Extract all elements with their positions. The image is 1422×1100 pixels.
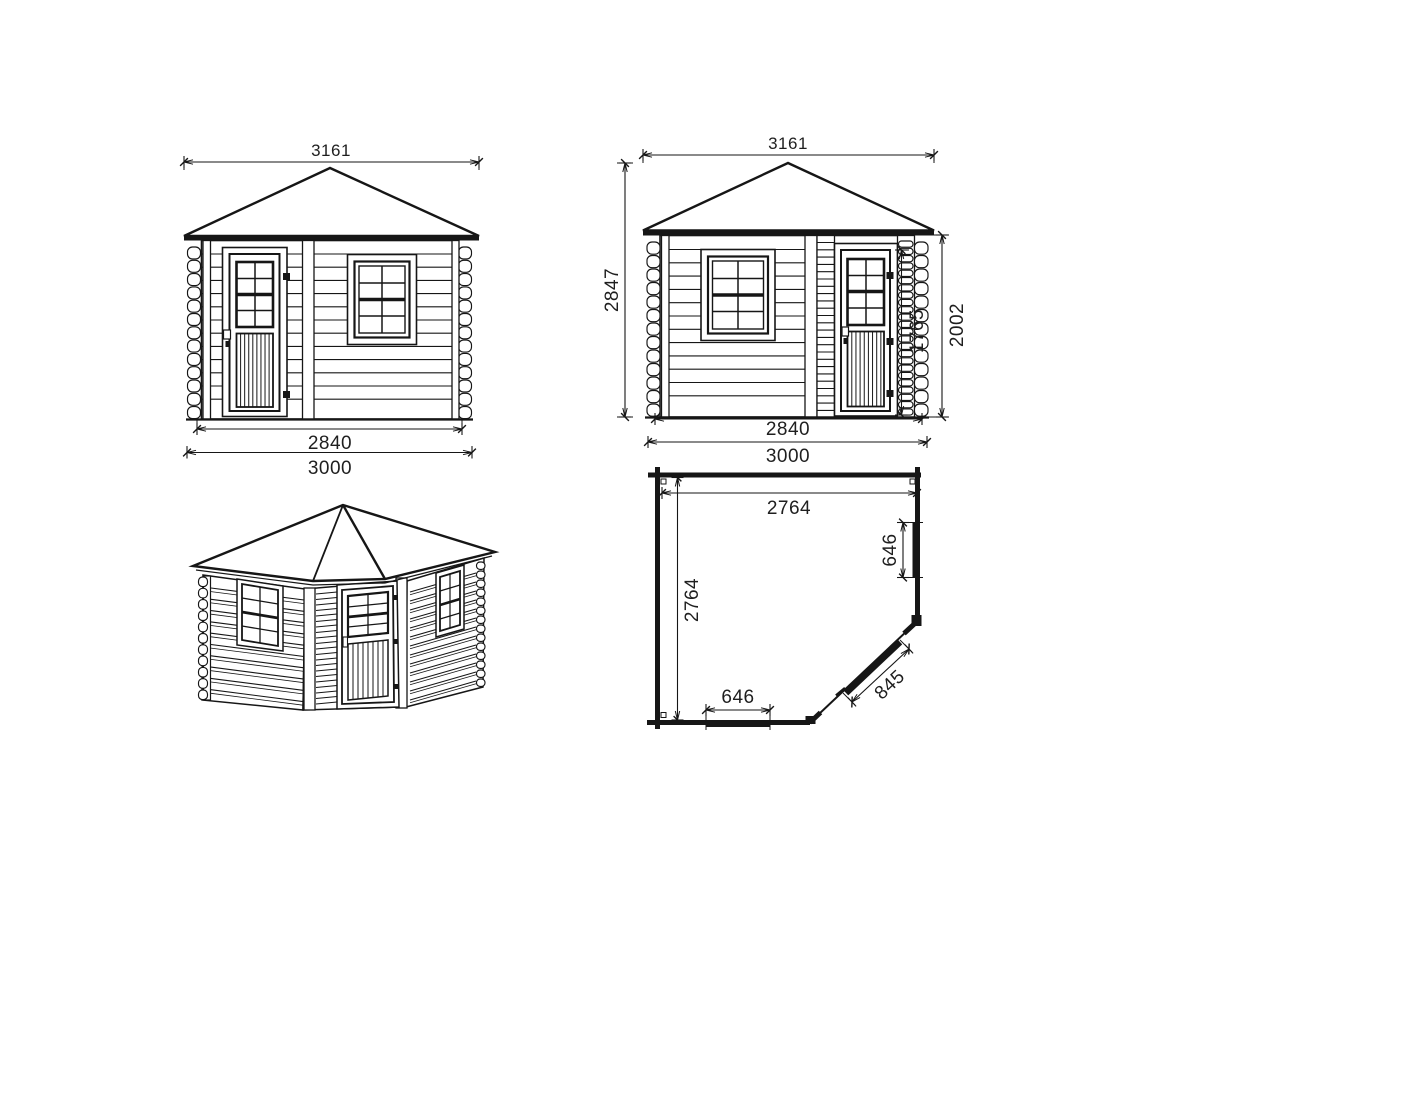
- perspective-view: [193, 505, 495, 710]
- side-door: [835, 244, 898, 417]
- front-window: [348, 255, 417, 345]
- side-door-slat-panel: [848, 332, 885, 407]
- side-window: [701, 250, 775, 341]
- side-door-hinge: [887, 272, 894, 279]
- plan-dim-door-width: 845: [871, 666, 910, 704]
- front-right-corner-trim: [452, 241, 459, 420]
- front-dim-roof-width: 3161: [311, 141, 351, 160]
- plan-corner-notch: [661, 713, 666, 718]
- p3-right-window: [436, 565, 464, 637]
- p3-door-left-post: [304, 588, 315, 710]
- front-dim-wall-width: 2840: [308, 433, 352, 454]
- side-door-hinge: [887, 390, 894, 397]
- p3-left-log-ends: [199, 577, 208, 700]
- p3-door-slats: [353, 641, 383, 700]
- front-eave-bar: [184, 235, 479, 241]
- side-eave-bar: [643, 230, 934, 236]
- plan-dim-side-window-width: 646: [880, 533, 901, 566]
- side-dim-door-height: 1765: [907, 309, 928, 353]
- front-door-lock: [226, 341, 230, 347]
- p3-door-handle: [343, 637, 348, 647]
- front-door-slat-panel: [237, 334, 274, 408]
- front-door-handle: [224, 330, 231, 339]
- plan-dim-interior-width: 2764: [767, 498, 811, 519]
- side-door-handle: [842, 327, 849, 336]
- front-dim-overall-width: 3000: [308, 458, 352, 479]
- drawing-sheet: 3161 2840 3000: [0, 0, 1422, 1100]
- front-left-log-ends: [188, 247, 201, 419]
- side-dim-wall-width: 2840: [766, 419, 810, 440]
- plan-dim-interior-depth: 2764: [682, 578, 703, 622]
- side-door-lock: [844, 338, 848, 344]
- plan-corner-block: [806, 716, 816, 724]
- front-elevation-view: 3161 2840 3000: [180, 141, 483, 479]
- side-left-log-ends: [647, 242, 660, 416]
- side-door-hinge: [887, 338, 894, 345]
- side-dim-wall-height: 2002: [947, 303, 968, 347]
- p3-left-window: [237, 579, 283, 651]
- p3-door-hinge: [394, 595, 399, 600]
- side-roof: [643, 163, 934, 231]
- side-angled-wall-strip: [817, 236, 835, 418]
- side-elevation-view: 3161 2847 1765 2002 2840 3000: [602, 134, 968, 467]
- side-dim-overall-width: 3000: [766, 446, 810, 467]
- front-right-log-ends: [459, 247, 472, 419]
- front-door: [223, 248, 291, 417]
- plan-wall-diagonal: [810, 621, 918, 723]
- side-corner-post: [805, 236, 817, 418]
- front-door-hinge: [283, 273, 290, 280]
- front-center-post: [303, 241, 315, 420]
- side-dim-roof-width: 3161: [768, 134, 808, 153]
- side-left-corner-trim: [662, 236, 670, 418]
- plan-corner-block: [912, 615, 922, 626]
- p3-door: [337, 581, 399, 709]
- plan-dim-front-window-width: 646: [721, 687, 754, 708]
- front-left-corner-trim: [203, 241, 211, 420]
- front-door-hinge: [283, 391, 290, 398]
- p3-door-hinge: [394, 684, 399, 689]
- p3-door-hinge: [394, 639, 399, 644]
- cabin-technical-drawing: 3161 2840 3000: [0, 0, 1422, 1100]
- side-dim-overall-height: 2847: [602, 268, 623, 312]
- front-roof: [184, 168, 479, 236]
- plan-corner-notch: [910, 479, 915, 484]
- floor-plan-view: 2764 2764 646 646 845: [647, 467, 923, 730]
- plan-corner-notch: [661, 479, 666, 484]
